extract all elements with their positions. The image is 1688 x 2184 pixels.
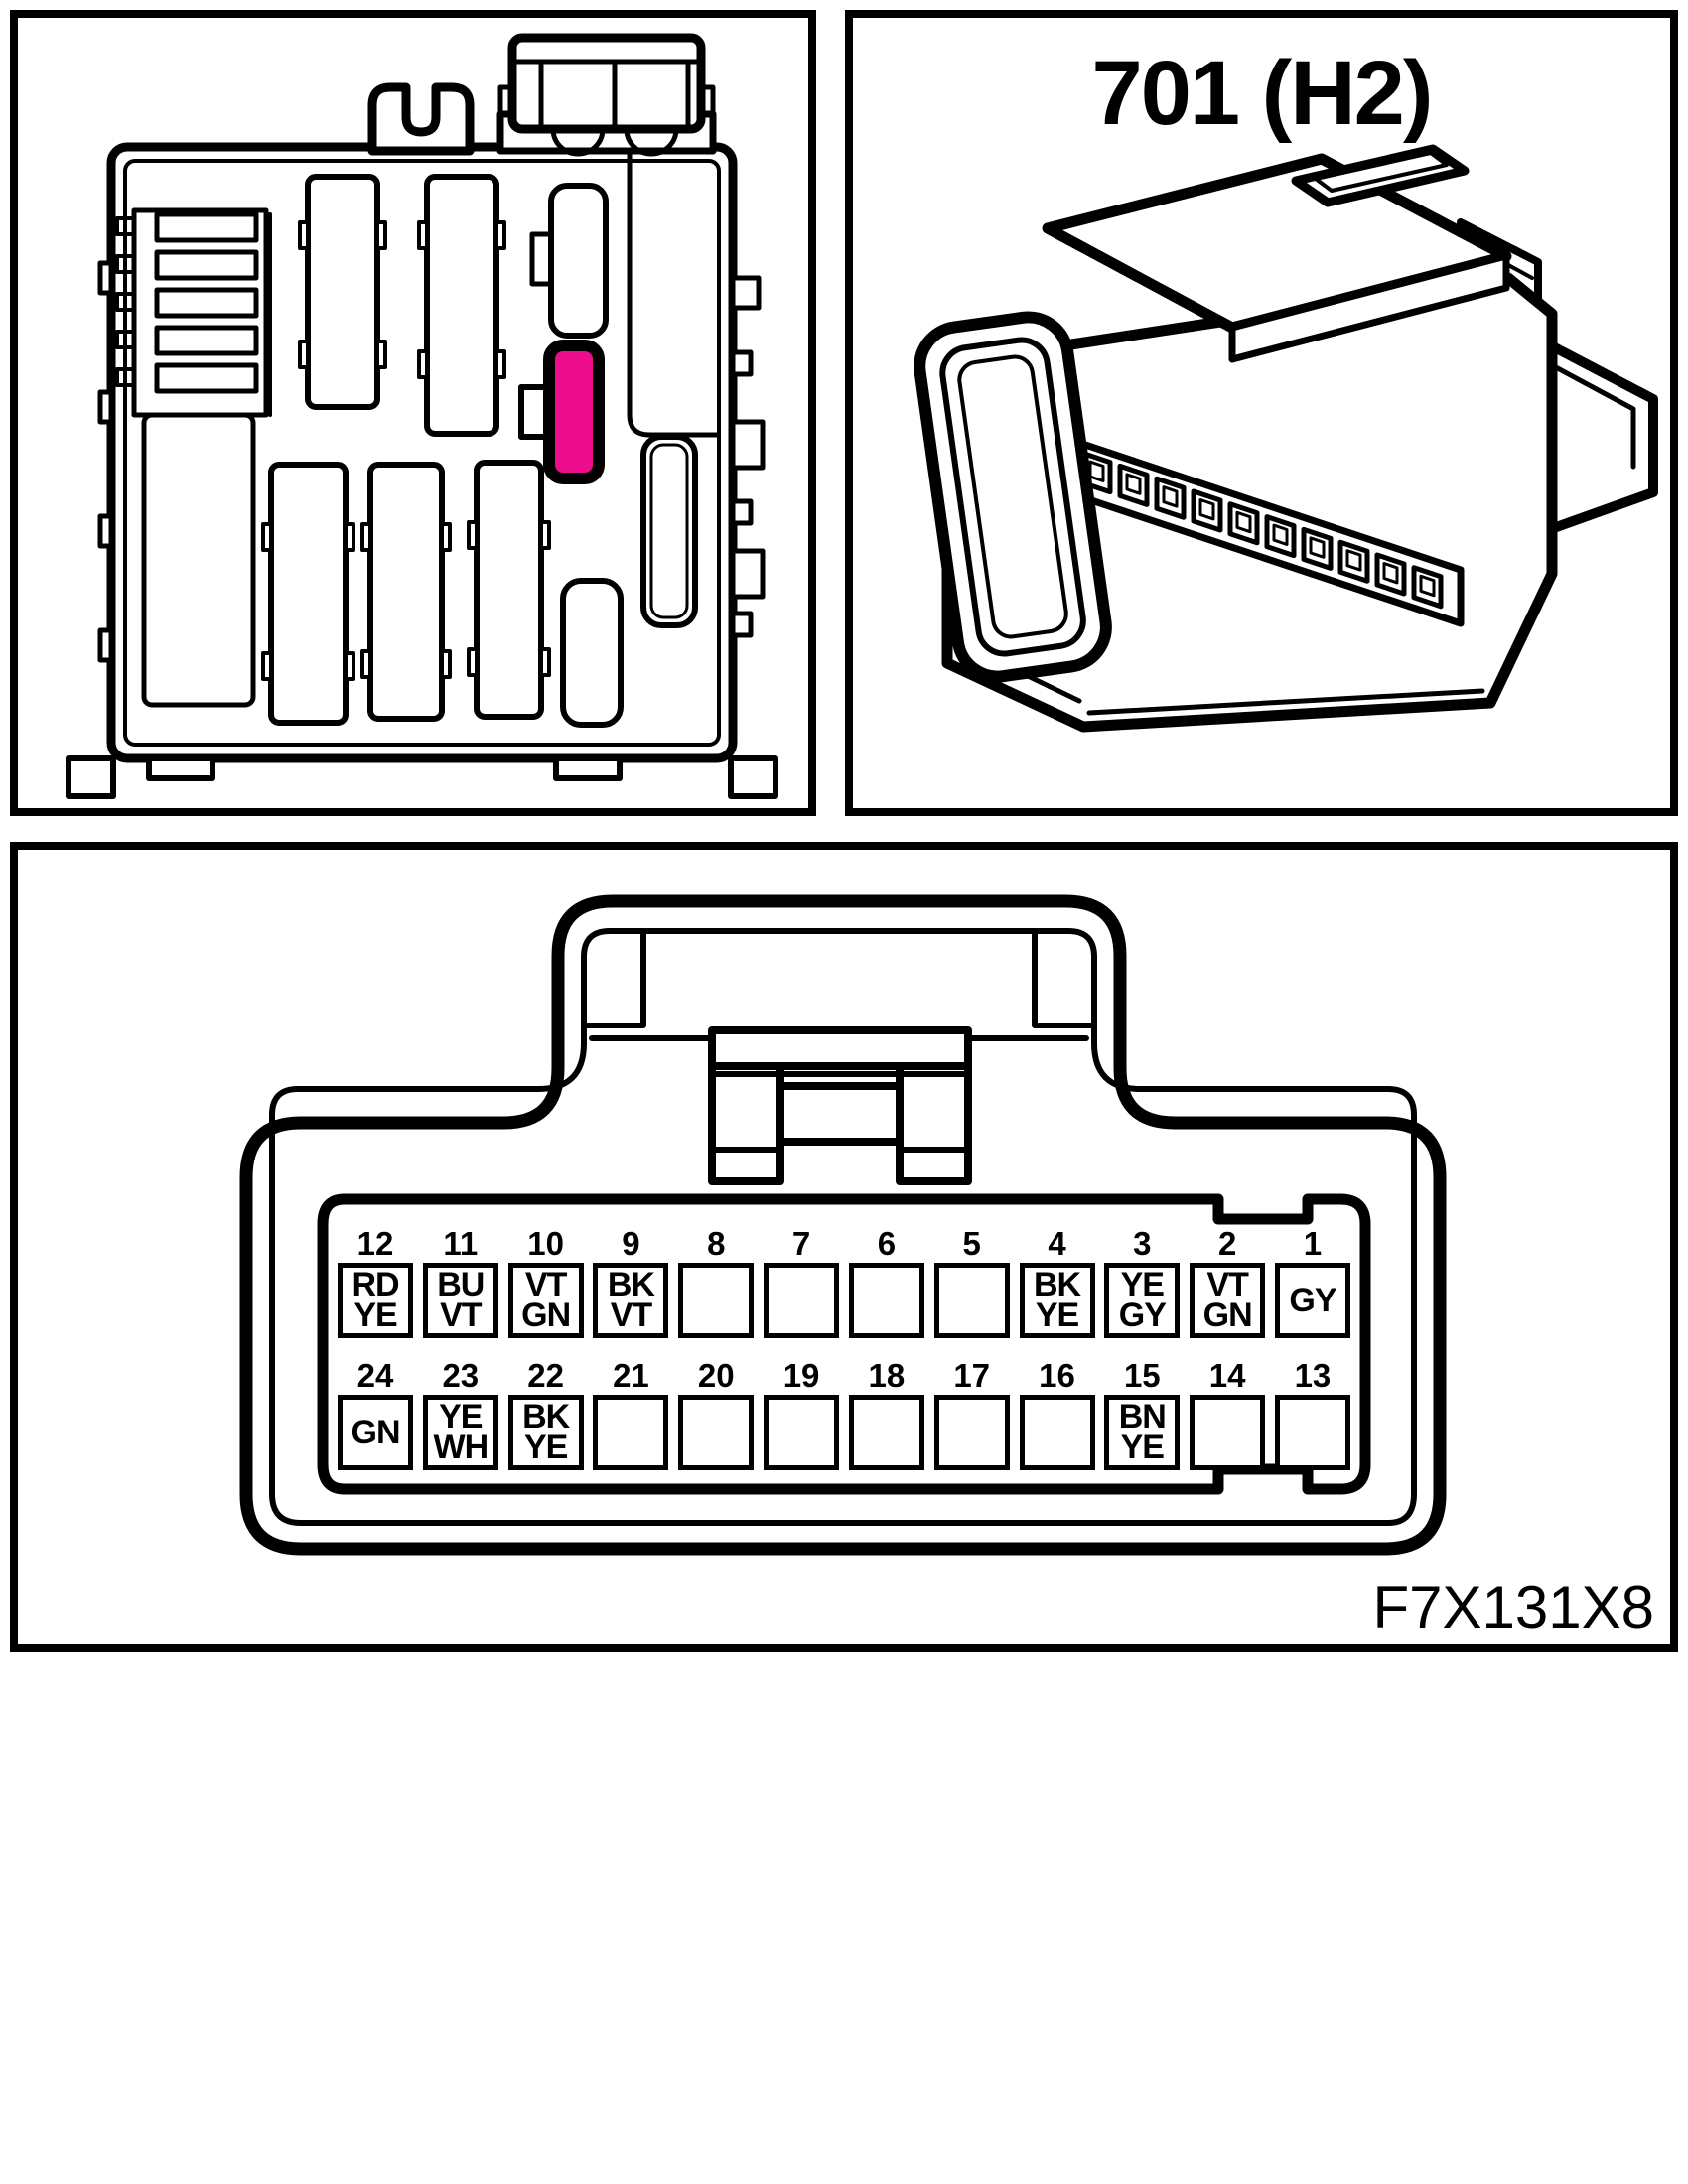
panel-fusebox-location [10, 10, 816, 816]
pin-number: 24 [357, 1357, 394, 1395]
pin-cell: 22BKYE [508, 1357, 584, 1470]
pin-cell: 7 [764, 1225, 839, 1338]
pin-box [678, 1395, 754, 1470]
pin-cell: 24GN [338, 1357, 413, 1470]
pin-cell: 9BKVT [593, 1225, 668, 1338]
pin-box: VTGN [508, 1263, 584, 1338]
pin-cell: 20 [678, 1357, 754, 1470]
pin-box: RDYE [338, 1263, 413, 1338]
pin-cell: 23YEWH [423, 1357, 498, 1470]
pin-number: 21 [613, 1357, 649, 1395]
pin-number: 15 [1124, 1357, 1161, 1395]
pin-row-upper: 12RDYE11BUVT10VTGN9BKVT87654BKYE3YEGY2VT… [323, 1225, 1365, 1338]
pin-cell: 10VTGN [508, 1225, 584, 1338]
wire-color-code: GY [1289, 1286, 1336, 1316]
pin-number: 3 [1133, 1225, 1151, 1263]
pin-cell: 8 [678, 1225, 754, 1338]
wire-color-code: YE [524, 1433, 567, 1463]
wire-color-code: WH [433, 1433, 488, 1463]
pin-box: YEGY [1104, 1263, 1180, 1338]
pin-box [1275, 1395, 1350, 1470]
pin-number: 19 [783, 1357, 820, 1395]
pin-box: BKYE [1020, 1263, 1095, 1338]
pin-cell: 1GY [1275, 1225, 1350, 1338]
pin-box [678, 1263, 754, 1338]
pin-cell: 14 [1190, 1357, 1265, 1470]
pin-box [934, 1263, 1010, 1338]
pin-number: 13 [1295, 1357, 1332, 1395]
pin-box: BUVT [423, 1263, 498, 1338]
pin-box: GY [1275, 1263, 1350, 1338]
pin-number: 11 [443, 1225, 478, 1263]
connector-3d-drawing [853, 18, 1670, 808]
pin-number: 8 [707, 1225, 725, 1263]
pin-number: 16 [1039, 1357, 1075, 1395]
pin-row-lower: 24GN23YEWH22BKYE21201918171615BNYE1413 [323, 1357, 1365, 1470]
pin-number: 20 [698, 1357, 735, 1395]
pin-number: 10 [527, 1225, 564, 1263]
pin-number: 1 [1304, 1225, 1322, 1263]
pin-number: 9 [622, 1225, 639, 1263]
pin-number: 2 [1218, 1225, 1236, 1263]
fuse-ladder [144, 415, 253, 705]
pin-box [764, 1395, 839, 1470]
wire-color-code: GN [352, 1418, 400, 1448]
pin-cell: 19 [764, 1357, 839, 1470]
pin-number: 7 [792, 1225, 810, 1263]
fuse-box-top-bracket [372, 87, 470, 151]
wire-color-code: VT [440, 1300, 481, 1331]
relay-slot-upper-right [419, 177, 504, 434]
fuse-comb-block [117, 210, 270, 415]
pin-cell: 3YEGY [1104, 1225, 1180, 1338]
pin-grid: 12RDYE11BUVT10VTGN9BKVT87654BKYE3YEGY2VT… [323, 1199, 1365, 1489]
pin-cell: 6 [849, 1225, 924, 1338]
slot-top-right [551, 186, 606, 336]
panel-pinout: 12RDYE11BUVT10VTGN9BKVT87654BKYE3YEGY2VT… [10, 842, 1678, 1652]
pin-cell: 12RDYE [338, 1225, 413, 1338]
pin-cell: 11BUVT [423, 1225, 498, 1338]
pin-cell: 15BNYE [1104, 1357, 1180, 1470]
pin-box [764, 1263, 839, 1338]
relay-slot-upper-left [300, 177, 385, 407]
pin-number: 6 [878, 1225, 896, 1263]
pin-number: 4 [1048, 1225, 1065, 1263]
pin-number: 22 [527, 1357, 564, 1395]
relay-slot-lower-right [469, 463, 549, 717]
pin-cell: 5 [934, 1225, 1010, 1338]
partition-line [630, 154, 717, 435]
pin-cell: 21 [593, 1357, 668, 1470]
pin-box [849, 1395, 924, 1470]
panel-connector-view: 701 (H2) [845, 10, 1678, 816]
relay-slot-lower-left [263, 465, 353, 723]
pin-number: 5 [963, 1225, 981, 1263]
pin-cell: 13 [1275, 1357, 1350, 1470]
pin-box: VTGN [1190, 1263, 1265, 1338]
pin-box: BKVT [593, 1263, 668, 1338]
pin-box [593, 1395, 668, 1470]
pin-number: 14 [1209, 1357, 1246, 1395]
pin-cell: 2VTGN [1190, 1225, 1265, 1338]
pin-cell: 4BKYE [1020, 1225, 1095, 1338]
pin-box: BKYE [508, 1395, 584, 1470]
pin-cell: 17 [934, 1357, 1010, 1470]
wire-color-code: YE [1036, 1300, 1078, 1331]
figure-code-label: F7X131X8 [1372, 1573, 1654, 1642]
pin-number: 12 [357, 1225, 394, 1263]
wire-color-code: GY [1119, 1300, 1166, 1331]
pin-box [849, 1263, 924, 1338]
service-manual-figure: { "palette": { "line": "#000000", "backg… [0, 0, 1688, 2184]
pin-box [1190, 1395, 1265, 1470]
pin-number: 17 [953, 1357, 990, 1395]
wire-color-code: GN [1203, 1300, 1252, 1331]
slot-bottom-right-pill [563, 581, 621, 725]
relay-slot-lower-middle [362, 465, 450, 719]
pin-number: 23 [442, 1357, 479, 1395]
pin-box: YEWH [423, 1395, 498, 1470]
pin-cell: 18 [849, 1357, 924, 1470]
mounting-feet [69, 758, 775, 796]
wire-color-code: GN [521, 1300, 570, 1331]
pinout-latch [712, 1030, 968, 1181]
pin-box: GN [338, 1395, 413, 1470]
pin-box: BNYE [1104, 1395, 1180, 1470]
wire-color-code: YE [353, 1300, 396, 1331]
wire-color-code: VT [611, 1300, 651, 1331]
pin-box [934, 1395, 1010, 1470]
pin-number: 18 [869, 1357, 906, 1395]
highlighted-connector-location [549, 345, 599, 478]
wire-color-code: YE [1121, 1433, 1164, 1463]
pin-box [1020, 1395, 1095, 1470]
fuse-box-drawing [18, 18, 808, 808]
pin-cell: 16 [1020, 1357, 1095, 1470]
